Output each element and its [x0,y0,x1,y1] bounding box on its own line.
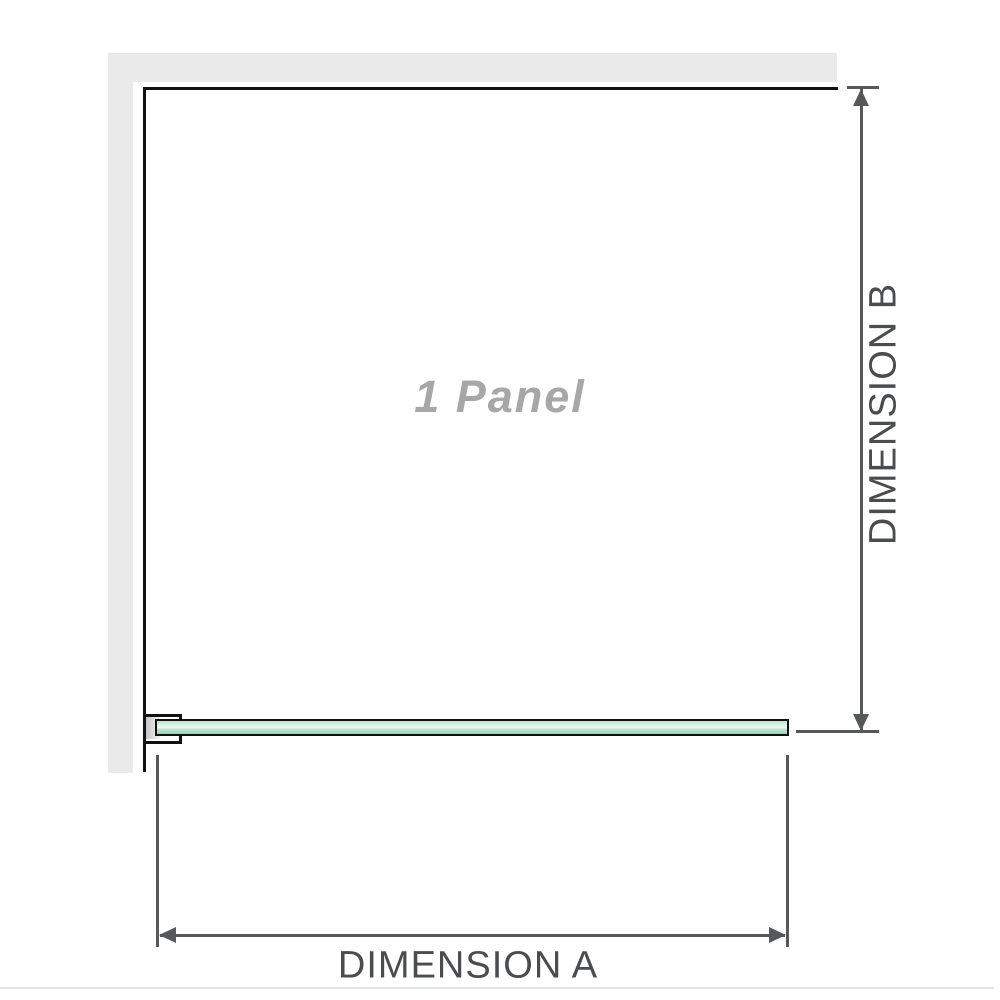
glass-panel [155,719,789,736]
shower-panel-dimension-diagram: 1 Panel DIMENSION B DIMENSION A [0,0,1000,1000]
wall-top [108,53,837,82]
dimension-b-line [860,88,863,731]
dimension-a-arrow-right-icon [769,927,786,943]
dimension-b-label: DIMENSION B [863,283,906,545]
image-bottom-divider [0,987,994,989]
dimension-a-arrow-left-icon [159,927,176,943]
dimension-a-line [160,934,785,937]
enclosure-top-edge [143,87,838,90]
dimension-b-arrow-down-icon [853,714,869,731]
dimension-a-label: DIMENSION A [338,945,598,988]
dimension-a-right-extension-line [786,755,789,947]
wall-left [108,53,133,773]
panel-count-label: 1 Panel [414,371,586,423]
dimension-b-arrow-up-icon [853,89,869,106]
dimension-a-left-extension-line [156,755,159,947]
enclosure-left-edge [143,87,146,772]
